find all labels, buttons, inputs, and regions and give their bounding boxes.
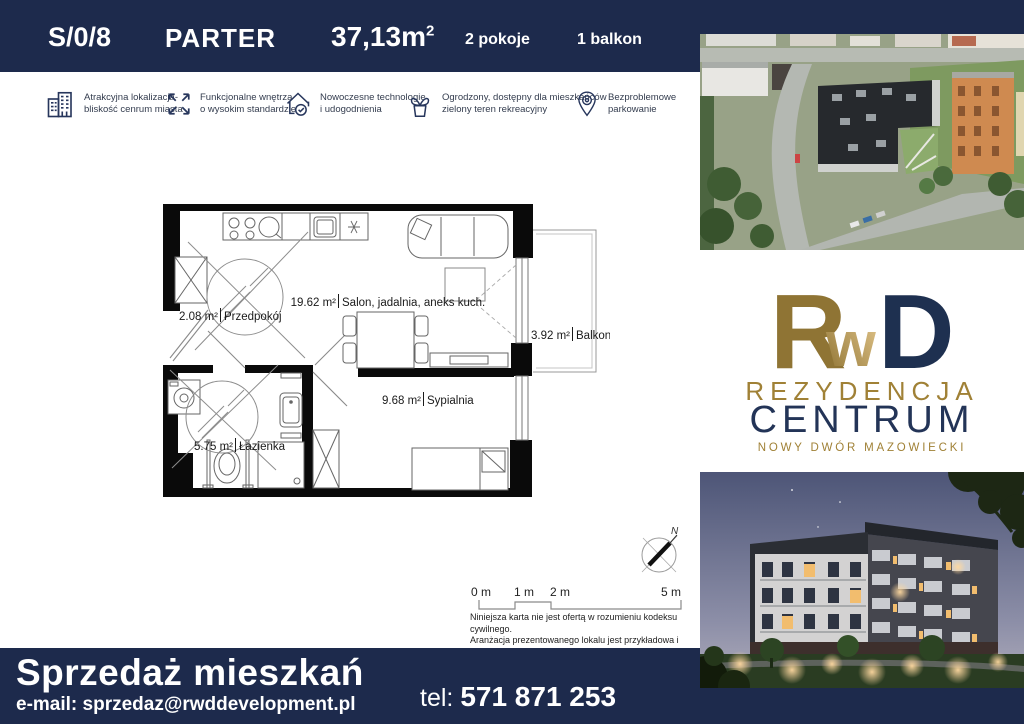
sofa — [408, 215, 508, 258]
scale-label-2m: 2 m — [550, 585, 570, 599]
room-name: Łazienka — [239, 441, 286, 453]
compass-north-label: N — [671, 526, 679, 537]
brand-block: R w D REZYDENCJA CENTRUM NOWY DWÓR MAZOW… — [700, 260, 1024, 465]
feature-interiors: Funkcjonalne wnętrza o wysokim standardz… — [166, 82, 296, 126]
room-area: 3.92 m² — [531, 330, 570, 342]
aerial-photo — [700, 34, 1024, 250]
dining-table — [343, 312, 428, 368]
house-tech-icon — [284, 90, 312, 118]
compass: N — [630, 523, 692, 585]
balcony-count: 1 balkon — [577, 31, 642, 49]
tv-cabinet — [430, 353, 508, 367]
footer-phone: tel: 571 871 253 — [420, 681, 616, 713]
feature-parking: Bezproblemowe parkowanie — [574, 82, 676, 126]
scale-label-5m: 5 m — [661, 585, 681, 599]
scale-label-1m: 1 m — [514, 585, 534, 599]
rooms-count: 2 pokoje — [465, 31, 530, 49]
area-superscript: 2 — [426, 23, 434, 40]
feature-technology: Nowoczesne technologie i udogodnienia — [284, 82, 426, 126]
expand-arrows-icon — [166, 91, 192, 117]
footer-headline: Sprzedaż mieszkań — [16, 652, 364, 694]
room-area: 19.62 m² — [291, 297, 337, 309]
brand-subtitle: NOWY DWÓR MAZOWIECKI — [758, 441, 966, 454]
phone-number: 571 871 253 — [460, 681, 616, 712]
logo-letter-w: w — [825, 308, 876, 380]
feature-location: Atrakcyjna lokalizacja- bliskość cenrum … — [46, 82, 183, 126]
compass-needle — [649, 543, 670, 565]
room-name: Salon, jadalnia, aneks kuch. — [342, 297, 485, 309]
room-name: Przedpokój — [224, 311, 282, 323]
area-label: 37,13m2 — [331, 21, 434, 53]
brand-title-main: CENTRUM — [750, 399, 975, 441]
bed — [412, 448, 508, 490]
room-area: 9.68 m² — [382, 395, 421, 407]
evening-render-photo — [700, 472, 1024, 688]
feature-label: Bezproblemowe parkowanie — [608, 92, 676, 116]
parking-pin-icon — [574, 90, 600, 118]
features-row: Atrakcyjna lokalizacja- bliskość cenrum … — [0, 82, 700, 126]
scale-bar: 0 m 1 m 2 m 5 m — [465, 583, 695, 615]
kitchen-counter — [223, 213, 368, 240]
floor-label: PARTER — [165, 23, 276, 54]
scale-label-0m: 0 m — [471, 585, 491, 599]
footer-email: e-mail: sprzedaz@rwddevelopment.pl — [16, 694, 356, 716]
room-name: Sypialnia — [427, 395, 474, 407]
room-area: 2.08 m² — [179, 311, 218, 323]
room-name: Balkon — [576, 330, 610, 342]
phone-label: tel: — [420, 684, 453, 712]
scale-line — [479, 600, 681, 609]
plant-icon — [406, 90, 434, 118]
header-bar: S/0/8 PARTER 37,13m2 2 pokoje 1 balkon — [0, 0, 700, 72]
floor-plan: 2.08 m² Przedpokój 19.62 m² Salon, jadal… — [150, 190, 610, 510]
unit-number: S/0/8 — [48, 22, 111, 53]
logo-letter-d: D — [878, 273, 955, 391]
area-value: 37,13m — [331, 21, 426, 52]
balcony-outline — [533, 230, 596, 372]
buildings-icon — [46, 89, 76, 119]
flat-card-page: S/0/8 PARTER 37,13m2 2 pokoje 1 balkon A… — [0, 0, 1024, 724]
feature-label: Funkcjonalne wnętrza o wysokim standardz… — [200, 92, 296, 116]
room-area: 5.75 m² — [194, 441, 233, 453]
